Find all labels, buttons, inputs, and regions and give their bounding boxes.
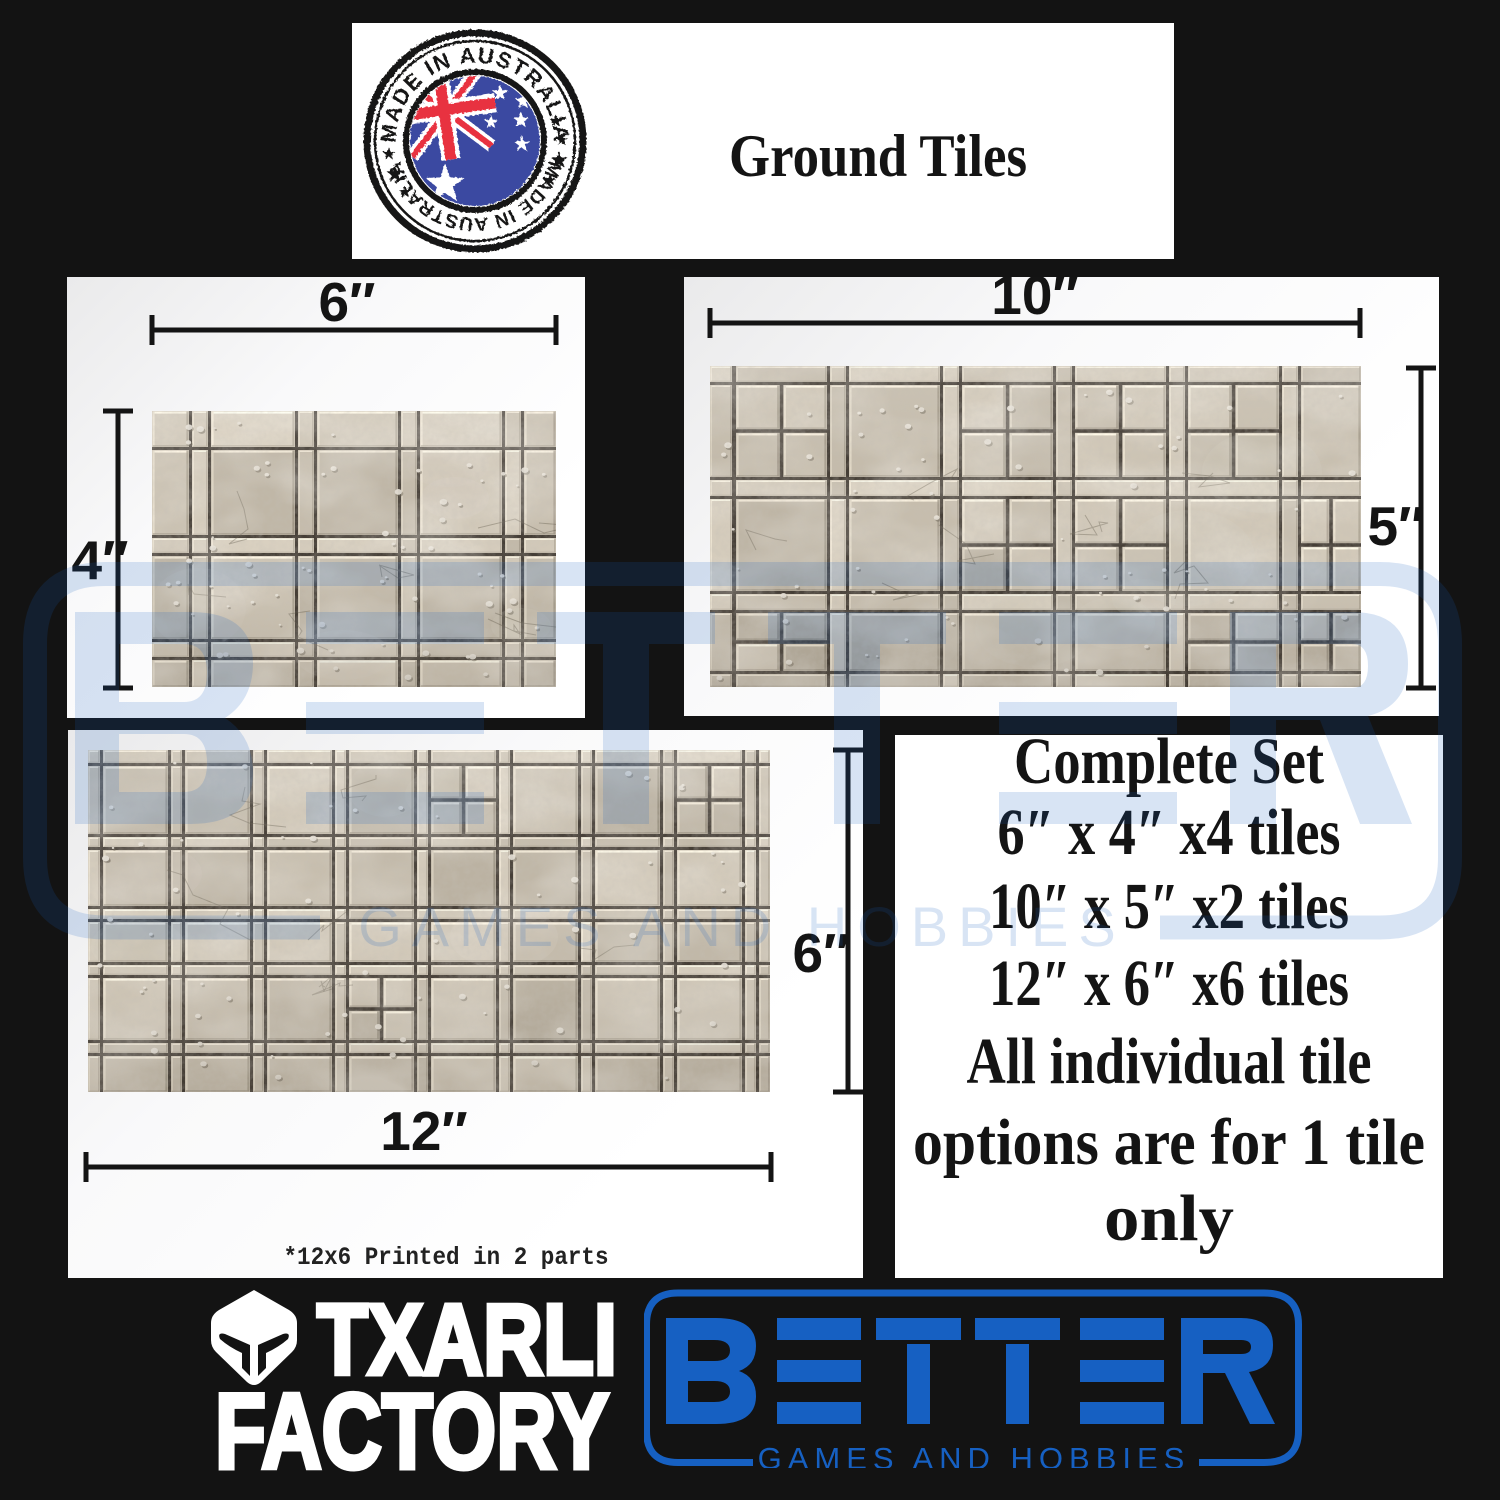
svg-text:*12x6 Printed in 2 parts: *12x6 Printed in 2 parts [284,1243,609,1272]
svg-text:10″ x 5″ x2 tiles: 10″ x 5″ x2 tiles [989,870,1349,943]
svg-text:6″ x 4″ x4 tiles: 6″ x 4″ x4 tiles [998,796,1341,869]
svg-text:only: only [1104,1182,1234,1255]
svg-text:5″: 5″ [1368,495,1425,557]
svg-text:6″: 6″ [319,277,376,333]
svg-text:All individual tile: All individual tile [967,1025,1372,1098]
svg-text:FACTORY: FACTORY [215,1371,609,1488]
svg-text:12″: 12″ [380,1100,468,1162]
svg-text:6″: 6″ [793,922,850,984]
svg-text:Complete Set: Complete Set [1014,735,1324,798]
svg-text:4″: 4″ [72,529,129,591]
svg-text:10″: 10″ [991,277,1079,326]
svg-text:Ground Tiles: Ground Tiles [729,123,1027,189]
svg-text:options are for 1 tile: options are for 1 tile [913,1106,1425,1179]
svg-text:12″ x 6″ x6 tiles: 12″ x 6″ x6 tiles [989,947,1349,1020]
